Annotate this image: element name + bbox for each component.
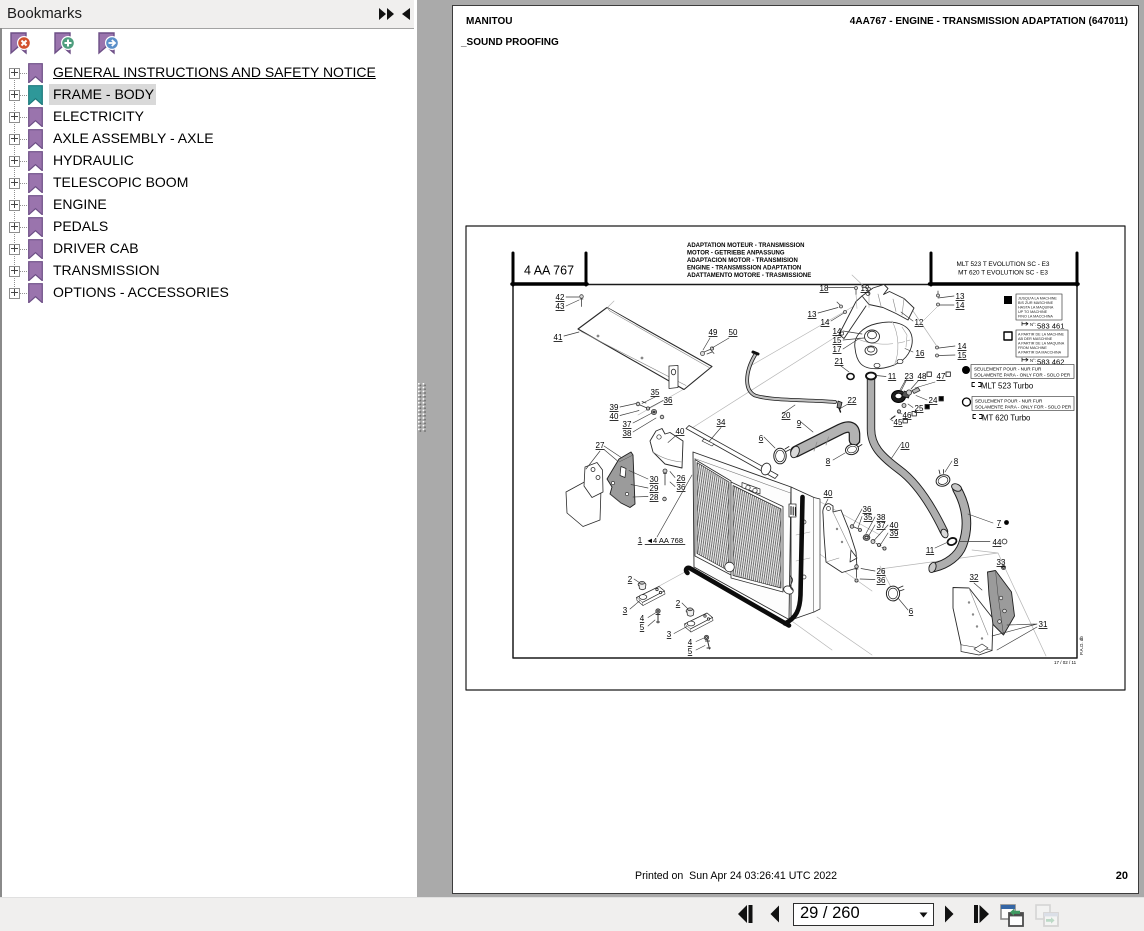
svg-text:44: 44 [993, 538, 1002, 547]
svg-text:8: 8 [954, 457, 959, 466]
svg-text:4 AA 767: 4 AA 767 [524, 264, 574, 278]
svg-text:SOLAMENTE PARA - ONLY FOR - SO: SOLAMENTE PARA - ONLY FOR - SOLO PER [974, 373, 1071, 378]
svg-text:33: 33 [997, 558, 1006, 567]
svg-text:8: 8 [826, 457, 831, 466]
svg-text:42: 42 [556, 293, 565, 302]
svg-text:3: 3 [623, 606, 628, 615]
svg-text:38: 38 [623, 429, 632, 438]
svg-text:MT 620 T EVOLUTION SC - E3: MT 620 T EVOLUTION SC - E3 [958, 270, 1048, 277]
svg-text:15: 15 [958, 351, 967, 360]
svg-text:14: 14 [956, 301, 965, 310]
svg-text:HASTA LA MAQUINA: HASTA LA MAQUINA [1018, 306, 1054, 310]
svg-text:1: 1 [638, 536, 643, 545]
svg-text:40: 40 [824, 489, 833, 498]
svg-text:MLT 523 Turbo: MLT 523 Turbo [981, 382, 1034, 391]
svg-text:35: 35 [651, 388, 660, 397]
svg-text:22: 22 [848, 396, 857, 405]
svg-text:5: 5 [640, 623, 645, 632]
svg-text:26: 26 [877, 567, 886, 576]
svg-text:26: 26 [677, 474, 686, 483]
svg-text:A PARTIR DA MACCHINA: A PARTIR DA MACCHINA [1018, 351, 1062, 355]
svg-text:27: 27 [596, 441, 605, 450]
svg-text:17: 17 [833, 345, 842, 354]
svg-text:34: 34 [717, 418, 726, 427]
svg-text:17 / 02 / 11: 17 / 02 / 11 [1054, 660, 1077, 665]
svg-text:SEULEMENT POUR - NUR FUR: SEULEMENT POUR - NUR FUR [975, 399, 1043, 404]
svg-text:43: 43 [556, 302, 565, 311]
svg-text:ADAPTATION MOTEUR - TRANSMISSI: ADAPTATION MOTEUR - TRANSMISSION [687, 243, 804, 249]
svg-text:A PARTIR DE LA MAQUINA: A PARTIR DE LA MAQUINA [1018, 342, 1065, 346]
svg-text:16: 16 [916, 349, 925, 358]
svg-text:7: 7 [997, 519, 1002, 528]
svg-text:2: 2 [676, 599, 681, 608]
svg-text:48: 48 [918, 372, 927, 381]
svg-text:49: 49 [709, 328, 718, 337]
svg-text:14: 14 [958, 342, 967, 351]
svg-text:50: 50 [729, 328, 738, 337]
svg-text:14: 14 [821, 318, 830, 327]
svg-text:31: 31 [1039, 620, 1048, 629]
svg-text:40: 40 [610, 412, 619, 421]
svg-text:32: 32 [970, 573, 979, 582]
svg-text:4 AA 768: 4 AA 768 [653, 536, 683, 545]
svg-text:41: 41 [554, 333, 563, 342]
svg-text:20: 20 [782, 411, 791, 420]
svg-text:11: 11 [926, 546, 935, 555]
svg-text:MT 620 Turbo: MT 620 Turbo [982, 414, 1031, 423]
svg-text:9: 9 [797, 419, 802, 428]
svg-text:FINO LA MACCHINA: FINO LA MACCHINA [1018, 315, 1053, 319]
svg-text:14: 14 [833, 327, 842, 336]
svg-text:11: 11 [888, 372, 897, 381]
svg-text:3: 3 [667, 630, 672, 639]
svg-text:A PARTIR DE LA MACHINE: A PARTIR DE LA MACHINE [1018, 333, 1065, 337]
svg-text:36: 36 [877, 576, 886, 585]
svg-text:47: 47 [937, 372, 946, 381]
svg-text:MLT 523 T EVOLUTION SC - E3: MLT 523 T EVOLUTION SC - E3 [957, 261, 1050, 268]
svg-text:JUSQU'A LA MACHINE: JUSQU'A LA MACHINE [1018, 297, 1057, 301]
svg-text:15: 15 [833, 336, 842, 345]
svg-text:29: 29 [650, 484, 659, 493]
svg-text:39: 39 [610, 403, 619, 412]
svg-text:583 461: 583 461 [1037, 322, 1064, 331]
svg-text:N°:: N°: [1030, 322, 1036, 327]
svg-text:4: 4 [640, 614, 645, 623]
svg-text:40: 40 [676, 427, 685, 436]
svg-text:28: 28 [650, 493, 659, 502]
svg-text:MOTOR - GETRIEBE ANPASSUNG: MOTOR - GETRIEBE ANPASSUNG [687, 251, 785, 257]
svg-text:N°:: N°: [1030, 358, 1036, 363]
svg-text:UP TO MACHINE: UP TO MACHINE [1018, 310, 1048, 314]
svg-text:35: 35 [864, 513, 873, 522]
svg-text:10: 10 [901, 441, 910, 450]
svg-text:ADAPTACION MOTOR - TRANSMISION: ADAPTACION MOTOR - TRANSMISION [687, 258, 798, 264]
svg-text:2: 2 [628, 575, 633, 584]
svg-text:45: 45 [894, 418, 903, 427]
svg-text:6: 6 [909, 607, 914, 616]
svg-text:39: 39 [890, 529, 899, 538]
svg-text:SOLAMENTE PARA - ONLY FOR - SO: SOLAMENTE PARA - ONLY FOR - SOLO PER [975, 405, 1072, 410]
svg-text:21: 21 [835, 357, 844, 366]
svg-text:P.A.O. db: P.A.O. db [1079, 636, 1084, 655]
svg-text:FROM MACHINE: FROM MACHINE [1018, 346, 1047, 350]
svg-text:13: 13 [956, 292, 965, 301]
svg-text:30: 30 [650, 475, 659, 484]
svg-text:24: 24 [929, 396, 938, 405]
svg-text:ENGINE - TRANSMISSION ADAPTATI: ENGINE - TRANSMISSION ADAPTATION [687, 266, 801, 272]
svg-text:37: 37 [623, 420, 632, 429]
svg-text:6: 6 [759, 434, 764, 443]
svg-text:4: 4 [688, 638, 693, 647]
svg-text:583 462: 583 462 [1037, 358, 1064, 367]
svg-text:36: 36 [664, 396, 673, 405]
svg-text:12: 12 [915, 318, 924, 327]
svg-text:23: 23 [905, 372, 914, 381]
svg-text:18: 18 [820, 284, 829, 293]
svg-text:ADATTAMENTO MOTORE - TRASMISSI: ADATTAMENTO MOTORE - TRASMISSIONE [687, 273, 811, 279]
svg-text:AB DER MASCHINE: AB DER MASCHINE [1018, 337, 1053, 341]
svg-text:BIS ZUR MASCHINE: BIS ZUR MASCHINE [1018, 301, 1054, 305]
svg-text:13: 13 [808, 310, 817, 319]
svg-text:5: 5 [688, 647, 693, 656]
svg-text:SEULEMENT POUR - NUR FUR: SEULEMENT POUR - NUR FUR [974, 367, 1042, 372]
